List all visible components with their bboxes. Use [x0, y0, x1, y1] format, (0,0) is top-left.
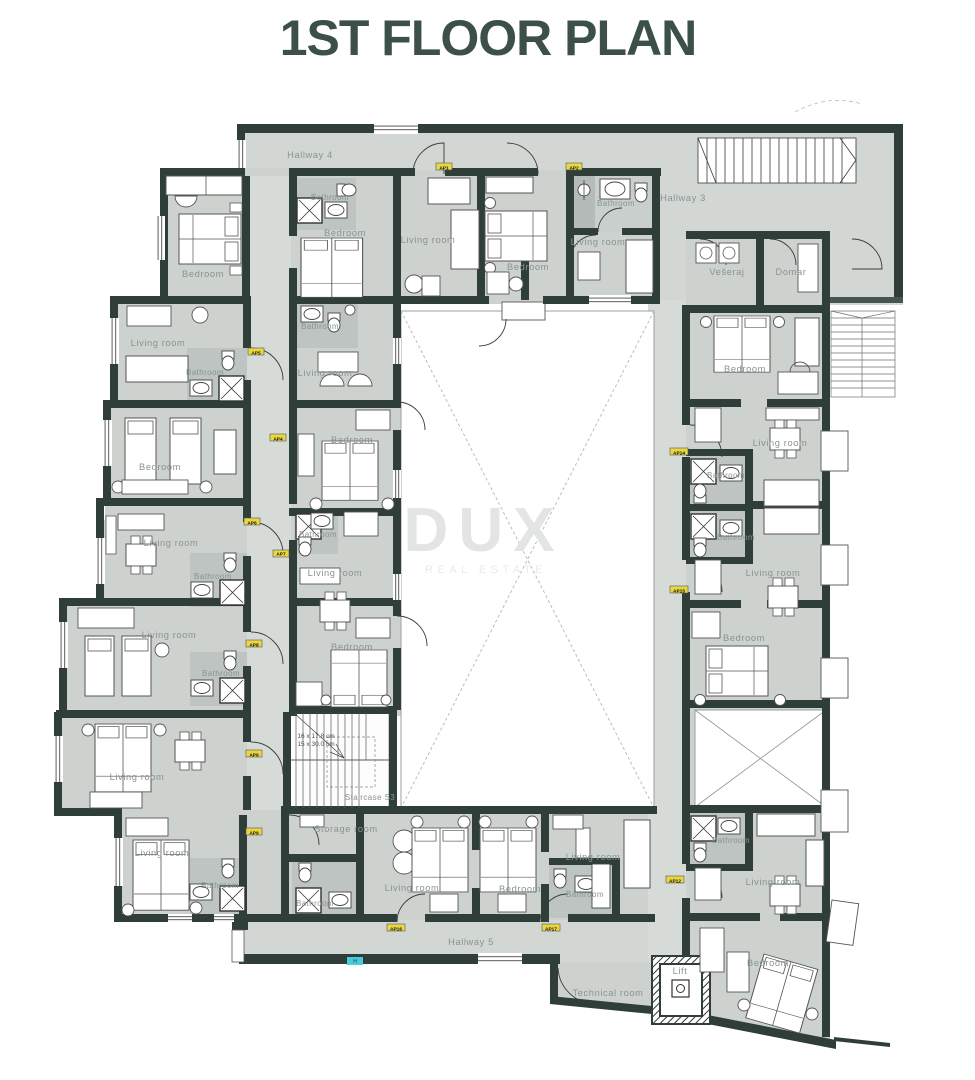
- svg-text:Bathroom: Bathroom: [712, 836, 750, 845]
- svg-text:AP6: AP6: [247, 521, 257, 527]
- svg-text:AP5: AP5: [251, 351, 261, 357]
- svg-text:Bathroom: Bathroom: [296, 899, 334, 908]
- svg-text:Bedroom: Bedroom: [324, 228, 366, 238]
- svg-text:AP9: AP9: [249, 753, 259, 759]
- svg-text:Living room: Living room: [135, 848, 190, 858]
- svg-text:Bathroom: Bathroom: [299, 530, 337, 539]
- svg-text:H: H: [353, 959, 357, 965]
- svg-text:Bedroom: Bedroom: [723, 633, 765, 643]
- svg-text:Living room: Living room: [131, 338, 186, 348]
- svg-text:AP1: AP1: [439, 166, 449, 172]
- svg-text:Bedroom: Bedroom: [331, 435, 373, 445]
- svg-text:1ST FLOOR PLAN: 1ST FLOOR PLAN: [280, 10, 697, 66]
- svg-text:Living room: Living room: [746, 568, 801, 578]
- svg-text:Hallway 4: Hallway 4: [287, 150, 333, 160]
- svg-text:Staircase S3: Staircase S3: [345, 793, 395, 802]
- svg-text:15 x 30.0 cm: 15 x 30.0 cm: [297, 741, 334, 748]
- svg-text:Domar: Domar: [776, 267, 807, 277]
- svg-text:Hallway 5: Hallway 5: [448, 937, 494, 947]
- svg-text:Bathroom: Bathroom: [194, 572, 232, 581]
- svg-text:Storage room: Storage room: [314, 824, 378, 834]
- svg-text:Lift: Lift: [673, 966, 688, 976]
- svg-text:AP8: AP8: [249, 643, 259, 649]
- svg-text:Bedroom: Bedroom: [331, 642, 373, 652]
- svg-text:AP2: AP2: [569, 166, 579, 172]
- svg-text:Living room: Living room: [746, 877, 801, 887]
- svg-text:Living room: Living room: [385, 883, 440, 893]
- svg-text:Living room: Living room: [401, 235, 456, 245]
- svg-text:Bedroom: Bedroom: [182, 269, 224, 279]
- svg-text:AP15: AP15: [673, 589, 685, 595]
- svg-text:AP12: AP12: [669, 879, 681, 885]
- svg-text:AP16: AP16: [390, 927, 402, 933]
- svg-text:Bedroom: Bedroom: [499, 884, 541, 894]
- svg-text:DUX: DUX: [404, 496, 565, 565]
- svg-text:Bathroom: Bathroom: [311, 193, 349, 202]
- svg-text:Living room: Living room: [144, 538, 199, 548]
- svg-text:Bedroom: Bedroom: [507, 262, 549, 272]
- svg-text:Bathroom: Bathroom: [301, 322, 339, 331]
- svg-text:Living room: Living room: [308, 568, 363, 578]
- svg-text:REAL ESTATE: REAL ESTATE: [425, 564, 547, 576]
- svg-text:Bedroom: Bedroom: [747, 958, 789, 968]
- svg-text:Bathroom: Bathroom: [566, 890, 604, 899]
- svg-text:Bedroom: Bedroom: [139, 462, 181, 472]
- svg-text:16 x 17.8 cm: 16 x 17.8 cm: [297, 733, 334, 740]
- svg-text:Bathroom: Bathroom: [707, 471, 745, 480]
- svg-text:Living room: Living room: [298, 368, 353, 378]
- svg-text:Vešeraj: Vešeraj: [709, 267, 744, 277]
- svg-text:Living room: Living room: [566, 852, 621, 862]
- svg-text:Bathroom: Bathroom: [186, 368, 224, 377]
- svg-text:AP7: AP7: [276, 552, 286, 558]
- svg-text:Living room: Living room: [142, 630, 197, 640]
- svg-text:Bedroom: Bedroom: [724, 364, 766, 374]
- svg-text:Living room: Living room: [753, 438, 808, 448]
- svg-text:Living room: Living room: [571, 237, 626, 247]
- svg-text:Technical room: Technical room: [573, 988, 644, 998]
- svg-text:Bathroom: Bathroom: [597, 199, 635, 208]
- svg-text:AP9: AP9: [249, 831, 259, 837]
- svg-text:Bathroom: Bathroom: [201, 881, 239, 890]
- svg-text:AP14: AP14: [673, 451, 685, 457]
- svg-text:Bathroom: Bathroom: [717, 533, 755, 542]
- svg-text:Living room: Living room: [110, 772, 165, 782]
- svg-text:AP4: AP4: [273, 437, 283, 443]
- svg-text:Hallway 3: Hallway 3: [660, 193, 706, 203]
- svg-text:Bathroom: Bathroom: [202, 669, 240, 678]
- svg-text:AP17: AP17: [545, 927, 557, 933]
